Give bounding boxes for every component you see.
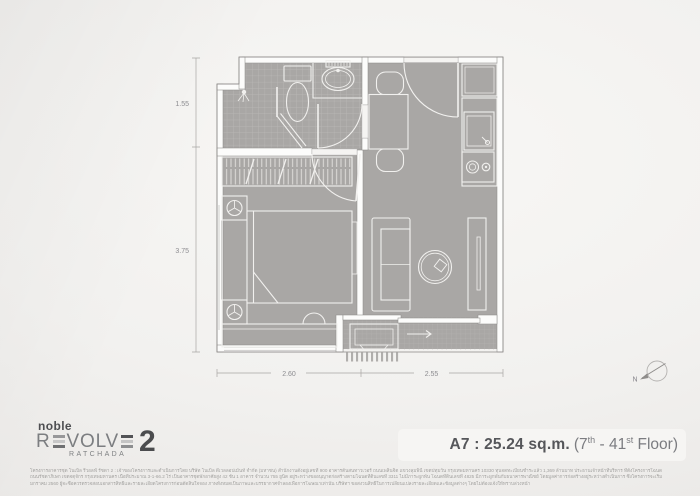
wall-top-right: [458, 57, 503, 63]
logo-revolve-r: R: [36, 433, 51, 450]
wardrobe: [222, 157, 352, 186]
dining-table: [369, 95, 408, 150]
dim-label-bottom-right: 2.55: [425, 371, 439, 378]
compass-north-label: N: [632, 377, 637, 384]
bed: [247, 211, 352, 303]
wall-top-left: [242, 57, 404, 63]
sliding-door-panel-2: [398, 318, 480, 323]
unit-area-bold-text: A7 : 25.24 sq.m.: [449, 436, 569, 454]
stylized-e-icon: [121, 435, 133, 448]
brochure-page: 1.55 3.75 2.60 2.55 N noble R VOLV 2 RAT…: [0, 0, 700, 496]
wall-right: [497, 57, 503, 352]
noble-revolve-logo: noble R VOLV 2 RATCHADA: [36, 419, 156, 458]
compass-icon: N: [632, 361, 667, 384]
wall-bathroom-right-upper: [362, 57, 368, 105]
logo-revolve-row: R VOLV 2: [36, 433, 156, 450]
logo-revolve-volv: VOLV: [67, 433, 119, 450]
wall-bottom-bedroom: [217, 345, 343, 352]
wall-bathroom-bottom: [217, 148, 312, 156]
unit-area-badge: A7 : 25.24 sq.m. (7th - 41st Floor): [398, 429, 686, 461]
unit-floor-range-text: (7th - 41st Floor): [574, 435, 678, 454]
wall-notch-vertical: [239, 57, 245, 89]
logo-number: 2: [139, 430, 156, 454]
disclaimer-line: ถนนรัชดาภิเษก เขตจตุจักร กรุงเทพมหานคร เ…: [30, 474, 662, 480]
dim-label-bottom-left: 2.60: [282, 371, 296, 378]
louver-vents-icon: [346, 353, 398, 362]
disclaimer-line: มกราคม 2560 ผู้จะซื้อควรตรวจสอบเอกสารสิท…: [30, 481, 662, 487]
entry-opening: [404, 58, 458, 63]
stylized-e-icon: [53, 435, 65, 448]
disclaimer-text: โครงการอาคารชุด โนเบิล รีวอลฟ์ รัชดา 2 :…: [30, 468, 662, 487]
dim-label-lower-left: 3.75: [175, 248, 189, 255]
wall-balcony-stub-right: [478, 315, 497, 324]
dim-label-upper-left: 1.55: [175, 101, 189, 108]
bedroom-opening: [312, 149, 357, 155]
wall-bathroom-right-lower: [362, 138, 368, 150]
bathroom-opening: [362, 105, 368, 138]
sliding-door-panel-1: [343, 315, 401, 320]
